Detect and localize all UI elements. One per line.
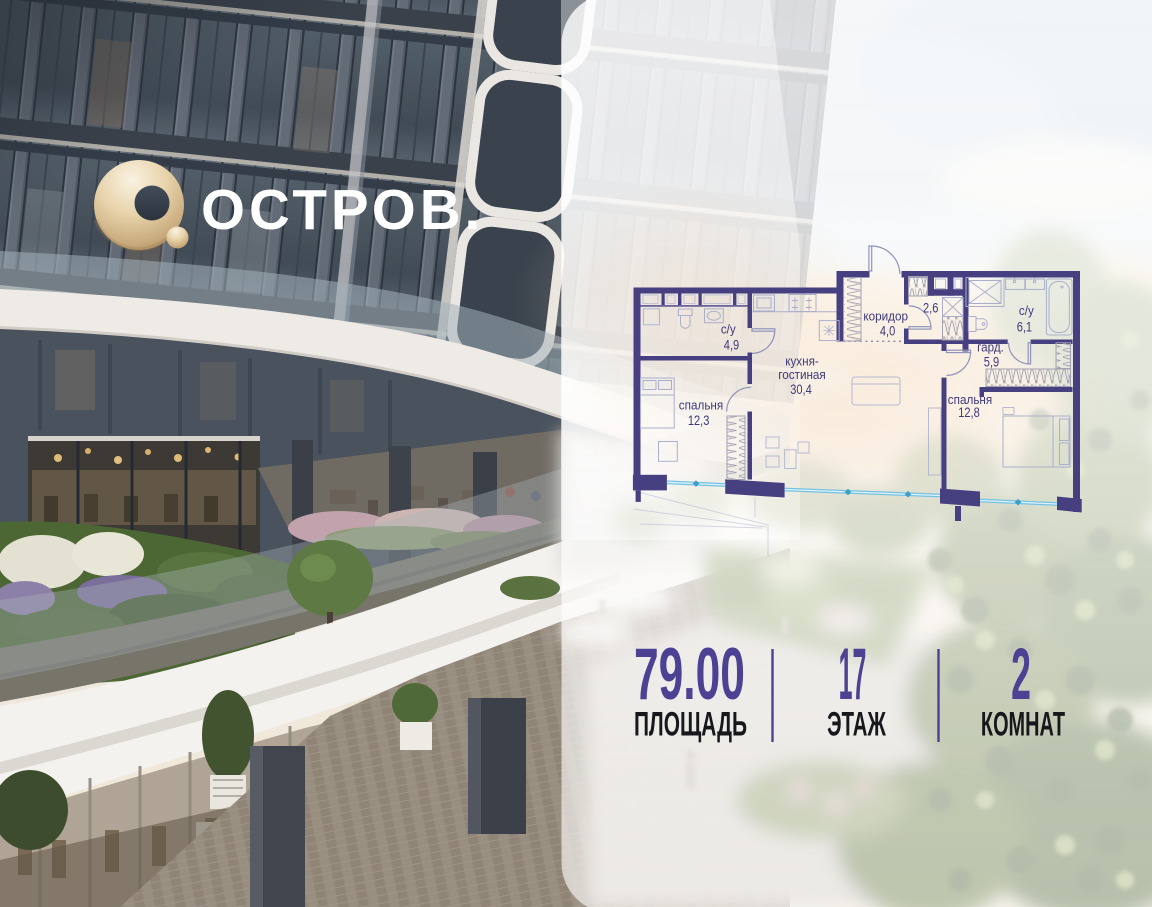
svg-text:4,0: 4,0 bbox=[880, 322, 895, 339]
svg-text:6,1: 6,1 bbox=[1017, 318, 1032, 335]
svg-text:с/у: с/у bbox=[1019, 303, 1035, 318]
svg-text:КОМНАТ: КОМНАТ bbox=[981, 704, 1065, 743]
svg-text:с/у: с/у bbox=[721, 322, 737, 337]
svg-text:ПЛОЩАДЬ: ПЛОЩАДЬ bbox=[634, 704, 747, 743]
svg-text:2,6: 2,6 bbox=[923, 299, 938, 316]
svg-text:4,9: 4,9 bbox=[724, 336, 739, 353]
svg-text:30,4: 30,4 bbox=[790, 380, 812, 397]
svg-text:ЭТАЖ: ЭТАЖ bbox=[827, 704, 886, 743]
svg-text:ОСТРОВ.: ОСТРОВ. bbox=[201, 178, 484, 241]
svg-text:12,8: 12,8 bbox=[958, 404, 980, 421]
svg-text:12,3: 12,3 bbox=[688, 411, 710, 428]
svg-text:5,9: 5,9 bbox=[984, 353, 999, 370]
